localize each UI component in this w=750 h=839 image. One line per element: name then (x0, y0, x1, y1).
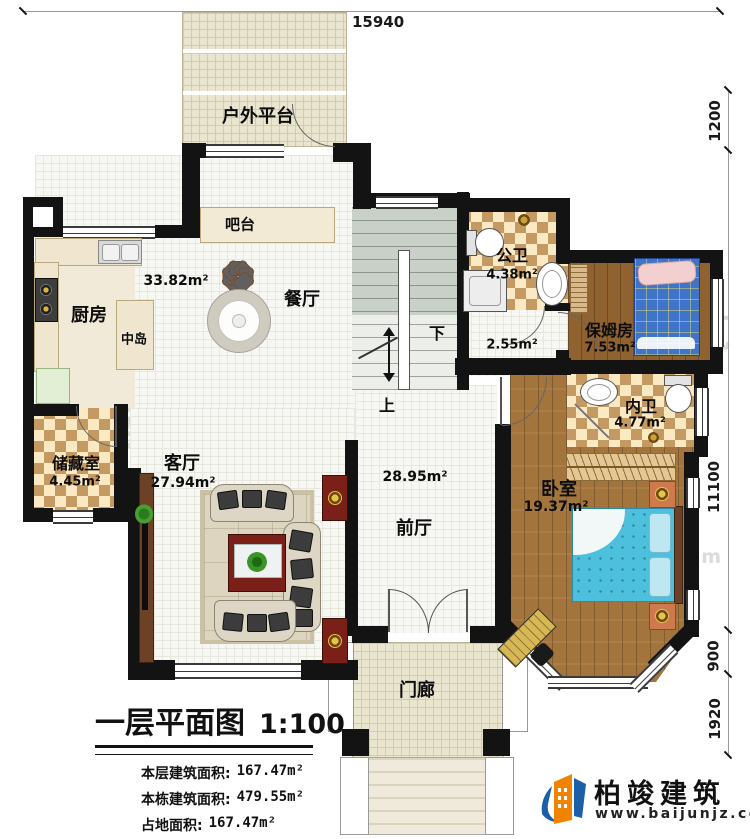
brand-block: 柏竣建筑 www.baijunjz.com (538, 768, 743, 830)
porch-column (483, 729, 510, 756)
toilet-bowl (665, 384, 692, 413)
steps-side-rail (485, 757, 514, 835)
window (686, 590, 700, 620)
headboard (674, 506, 683, 604)
wall (495, 424, 511, 636)
bathroom-sink (580, 378, 618, 406)
plan-title: 一层平面图 (95, 698, 245, 742)
dimension-right-1200: 1200 (706, 100, 724, 142)
wall (23, 237, 34, 522)
window (206, 144, 284, 158)
label-storage: 储藏室 (52, 456, 100, 472)
stove (35, 278, 58, 322)
pillow (637, 260, 696, 286)
wall (352, 626, 388, 643)
dimension-right-900: 900 (705, 640, 723, 671)
stat-label: 本栋建筑面积: (141, 789, 231, 809)
label-inner-bath-area: 4.77m² (614, 417, 665, 430)
brand-url: www.baijunjz.com (595, 806, 750, 822)
wall (93, 508, 128, 522)
nanny-wardrobe (570, 264, 588, 314)
coffee-table (228, 534, 286, 592)
label-outdoor-platform: 户外平台 (222, 108, 294, 126)
media-cabinet (322, 475, 348, 521)
stair-rail (398, 250, 410, 390)
media-cabinet (322, 618, 348, 664)
brand-logo-icon (538, 770, 590, 830)
refrigerator (36, 368, 70, 404)
label-public-bath-area: 4.38m² (486, 269, 537, 282)
wall (457, 198, 570, 212)
floor-drain (648, 432, 659, 443)
bedroom-wardrobe (566, 453, 676, 481)
wall (182, 143, 206, 158)
label-porch: 门廊 (399, 682, 435, 700)
label-stairs-up: 上 (379, 398, 395, 414)
window (376, 196, 438, 209)
label-dining-area: 33.82m² (143, 274, 208, 288)
dimension-top-label: 15940 (352, 13, 404, 31)
label-storage-area: 4.45m² (49, 476, 100, 489)
stat-value: 167.47m² (209, 815, 276, 835)
front-hall-floor (355, 385, 497, 633)
stat-value: 167.47m² (237, 763, 304, 783)
label-living-area: 27.94m² (150, 476, 215, 490)
door-leaf (115, 406, 117, 446)
bar-counter (200, 207, 335, 243)
legend-underline (95, 745, 313, 755)
wall (345, 440, 358, 636)
label-corridor-area: 2.55m² (486, 339, 537, 352)
kitchen-sink (98, 240, 142, 264)
floor-drain (518, 214, 530, 226)
dimension-right-11100: 11100 (705, 461, 723, 513)
door-leaf (388, 589, 390, 632)
wall (23, 404, 79, 416)
tv (142, 512, 148, 610)
nightstand (649, 481, 676, 508)
label-front-hall: 前厅 (396, 520, 432, 538)
label-nanny-room-area: 7.53m² (584, 342, 635, 355)
wall (128, 660, 175, 680)
dimension-right-1920: 1920 (706, 698, 724, 740)
label-bedroom-area: 19.37m² (523, 500, 588, 514)
floor-plan-canvas: 柏竣建筑 www.baijunjz.com 柏竣建筑 www.baijunjz.… (0, 0, 750, 839)
sofa-bottom (214, 600, 296, 642)
label-nanny-room: 保姆房 (585, 323, 633, 339)
entry-steps (368, 757, 486, 835)
label-public-bath: 公卫 (496, 248, 528, 264)
stat-label: 占地面积: (141, 815, 203, 835)
window (53, 510, 93, 524)
nightstand (649, 603, 676, 630)
label-bedroom: 卧室 (541, 481, 577, 499)
window (711, 279, 724, 347)
bathroom-sink (536, 262, 568, 306)
wall (23, 508, 53, 522)
door-leaf (500, 377, 502, 425)
blanket-fold (573, 509, 625, 555)
label-stairs-down: 下 (429, 326, 445, 342)
label-bar: 吧台 (225, 218, 255, 233)
double-bed (572, 508, 676, 602)
pillow (649, 557, 671, 597)
window (686, 478, 700, 508)
plant (135, 504, 153, 524)
door-leaf (466, 589, 468, 632)
plant (247, 552, 267, 572)
label-kitchen: 厨房 (71, 307, 107, 325)
plan-scale: 1:100 (259, 709, 345, 740)
pillow (649, 513, 671, 553)
label-inner-bath: 内卫 (625, 399, 657, 415)
stat-value: 479.55m² (237, 789, 304, 809)
legend: 一层平面图 1:100 本层建筑面积:167.47m² 本栋建筑面积:479.5… (95, 698, 355, 839)
nanny-bed (634, 258, 700, 356)
label-island: 中岛 (121, 334, 147, 347)
top-dimension-line (23, 11, 720, 12)
label-dining: 餐厅 (284, 291, 320, 309)
window (175, 663, 301, 679)
staircase (352, 195, 457, 390)
wall (455, 358, 571, 375)
sofa-top (210, 484, 294, 522)
label-living: 客厅 (164, 455, 200, 473)
wall (23, 197, 63, 237)
stat-label: 本层建筑面积: (141, 763, 231, 783)
window (695, 388, 709, 436)
right-dimension-line (728, 90, 729, 755)
label-front-hall-area: 28.95m² (382, 470, 447, 484)
